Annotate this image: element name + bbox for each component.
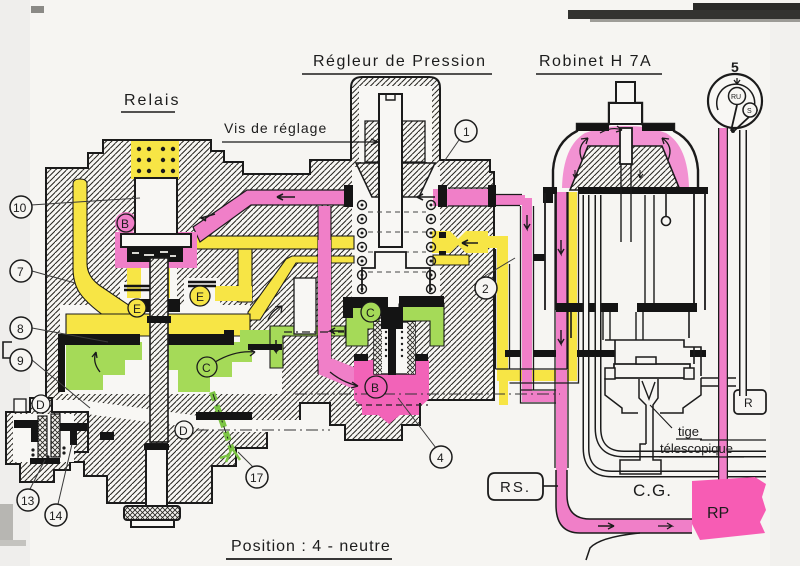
- svg-text:Régleur de Pression: Régleur de Pression: [313, 53, 486, 70]
- svg-text:tige: tige: [678, 424, 699, 439]
- svg-text:C.G.: C.G.: [633, 481, 672, 500]
- svg-text:C: C: [202, 361, 211, 375]
- svg-text:E: E: [196, 290, 204, 304]
- svg-text:S: S: [747, 108, 752, 115]
- svg-text:Robinet H 7A: Robinet H 7A: [539, 53, 652, 70]
- svg-text:9: 9: [17, 354, 24, 368]
- svg-text:4: 4: [437, 451, 444, 465]
- svg-text:D: D: [179, 424, 188, 438]
- svg-text:7: 7: [17, 265, 24, 279]
- svg-text:RS.: RS.: [500, 479, 531, 496]
- svg-text:2: 2: [482, 282, 489, 296]
- svg-text:Vis de réglage: Vis de réglage: [224, 120, 327, 136]
- svg-text:5: 5: [731, 59, 739, 75]
- svg-text:1: 1: [463, 125, 470, 139]
- svg-text:17: 17: [250, 471, 264, 485]
- svg-text:14: 14: [49, 509, 63, 523]
- svg-text:8: 8: [17, 322, 24, 336]
- svg-text:RP: RP: [707, 505, 729, 522]
- svg-text:R: R: [744, 396, 753, 410]
- svg-text:télescopique: télescopique: [660, 441, 733, 456]
- svg-text:C: C: [366, 306, 375, 320]
- svg-text:E: E: [133, 302, 141, 316]
- svg-text:10: 10: [13, 201, 27, 215]
- svg-text:RU: RU: [731, 94, 741, 101]
- svg-text:B: B: [121, 217, 129, 231]
- svg-text:Relais: Relais: [124, 92, 180, 109]
- svg-text:Position : 4 - neutre: Position : 4 - neutre: [231, 538, 391, 555]
- svg-text:D: D: [36, 398, 45, 412]
- svg-text:13: 13: [21, 494, 35, 508]
- svg-text:B: B: [371, 381, 379, 395]
